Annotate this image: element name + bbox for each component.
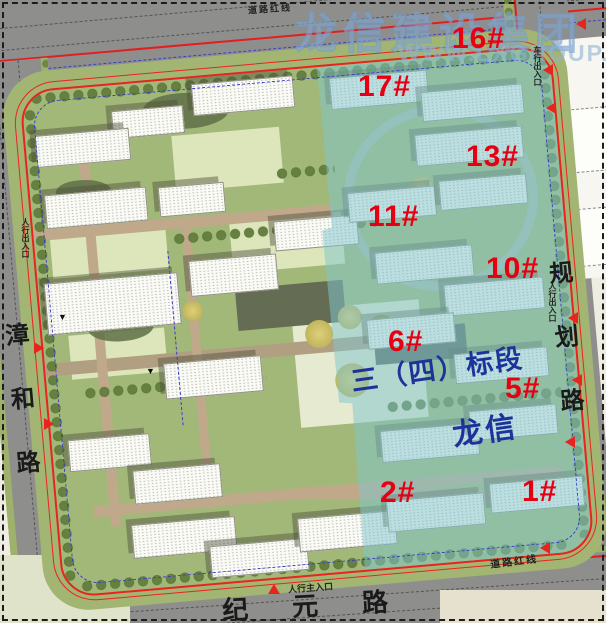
entrance-arrow-icon bbox=[34, 342, 50, 354]
company-label: 龙信 bbox=[449, 402, 520, 455]
site-boundary bbox=[19, 45, 595, 599]
entrance-arrow-icon bbox=[559, 436, 575, 448]
building-label-17: 17# bbox=[358, 70, 411, 104]
entrance-arrow-icon bbox=[570, 18, 586, 30]
entrance-arrow-icon bbox=[534, 542, 550, 554]
entrance-arrow-icon bbox=[268, 578, 280, 594]
building-label-16: 16# bbox=[452, 22, 505, 56]
entrance-arrow-icon bbox=[537, 64, 553, 76]
building-label-1: 1# bbox=[522, 475, 557, 509]
direction-marker-icon: ▼ bbox=[58, 312, 67, 322]
building-label-13: 13# bbox=[466, 140, 519, 174]
entrance-arrow-icon bbox=[44, 418, 60, 430]
entrance-arrow-icon bbox=[562, 312, 578, 324]
building-label-5: 5# bbox=[505, 372, 540, 406]
pedestrian-entrance-label-right: 人行出入口 bbox=[547, 282, 558, 322]
entrance-arrow-icon bbox=[566, 374, 582, 386]
corner-beige-area bbox=[440, 590, 606, 623]
building-label-10: 10# bbox=[486, 252, 539, 286]
entrance-arrow-icon bbox=[540, 102, 556, 114]
building-label-2: 2# bbox=[380, 476, 415, 510]
building-label-6: 6# bbox=[388, 325, 423, 359]
direction-marker-icon: ▼ bbox=[146, 366, 155, 376]
pedestrian-entrance-label-left: 人行出入口 bbox=[20, 218, 31, 258]
building-label-11: 11# bbox=[368, 200, 419, 234]
setback-dashed-line bbox=[32, 58, 582, 586]
site-plan: 16# 17# 13# 11# 10# 6# 5# 2# 1# 三（四）标段 龙… bbox=[0, 0, 606, 623]
